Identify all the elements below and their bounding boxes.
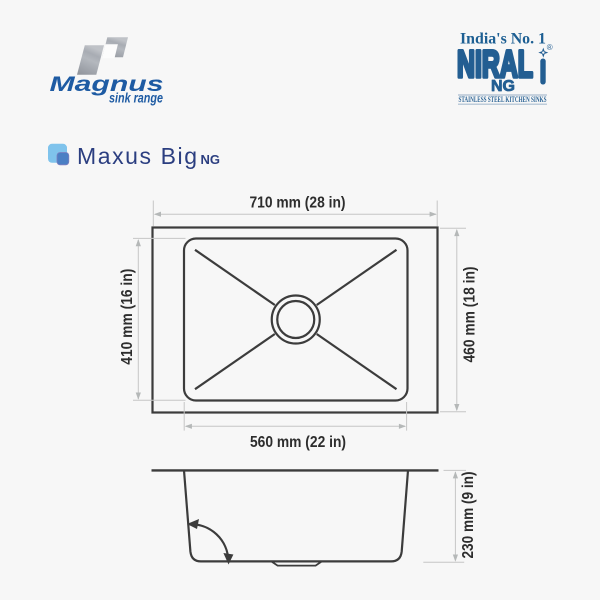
svg-text:560 mm (22 in): 560 mm (22 in) bbox=[250, 434, 346, 451]
svg-text:STAINLESS STEEL KITCHEN SINKS: STAINLESS STEEL KITCHEN SINKS bbox=[459, 95, 547, 104]
svg-text:®: ® bbox=[547, 43, 553, 52]
svg-text:460 mm (18 in): 460 mm (18 in) bbox=[461, 267, 478, 363]
svg-text:Maxus Big: Maxus Big bbox=[77, 143, 197, 169]
svg-text:710 mm (28 in): 710 mm (28 in) bbox=[250, 195, 346, 212]
svg-text:NG: NG bbox=[491, 78, 515, 95]
svg-text:sink range: sink range bbox=[109, 90, 163, 106]
svg-text:230 mm (9 in): 230 mm (9 in) bbox=[460, 472, 477, 559]
svg-text:410 mm (16 in): 410 mm (16 in) bbox=[119, 269, 136, 365]
svg-text:NG: NG bbox=[201, 152, 221, 167]
